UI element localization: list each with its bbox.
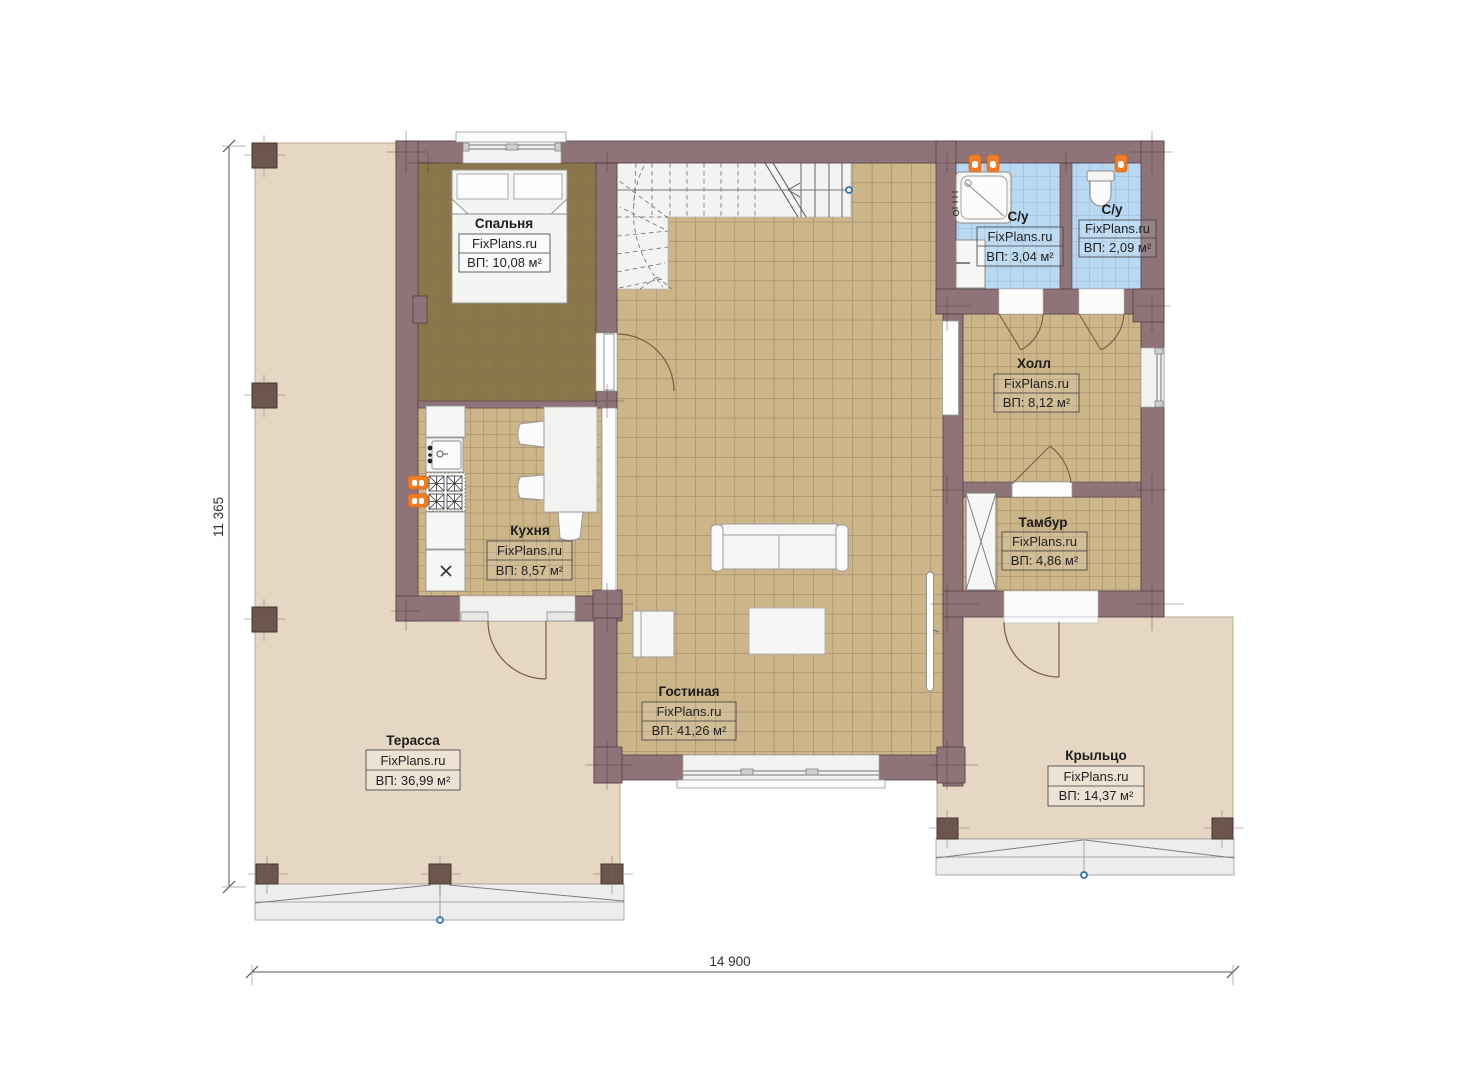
- svg-text:ВП: 8,12 м²: ВП: 8,12 м²: [1003, 395, 1071, 410]
- svg-text:С/у: С/у: [1101, 202, 1123, 217]
- svg-text:С/у: С/у: [1007, 209, 1029, 224]
- svg-text:11 365: 11 365: [211, 497, 226, 537]
- svg-text:Гостиная: Гостиная: [658, 684, 719, 699]
- svg-text:FixPlans.ru: FixPlans.ru: [1085, 221, 1150, 236]
- svg-text:14 900: 14 900: [709, 954, 750, 969]
- svg-text:Холл: Холл: [1017, 356, 1051, 371]
- svg-text:Спальня: Спальня: [475, 216, 533, 231]
- svg-text:FixPlans.ru: FixPlans.ru: [1004, 376, 1069, 391]
- svg-text:FixPlans.ru: FixPlans.ru: [472, 236, 537, 251]
- svg-text:ВП: 8,57 м²: ВП: 8,57 м²: [496, 563, 564, 578]
- svg-text:FixPlans.ru: FixPlans.ru: [1063, 769, 1128, 784]
- svg-text:FixPlans.ru: FixPlans.ru: [380, 753, 445, 768]
- svg-text:ВП: 2,09 м²: ВП: 2,09 м²: [1084, 240, 1152, 255]
- svg-text:Терасса: Терасса: [386, 733, 440, 748]
- svg-text:Тамбур: Тамбур: [1019, 515, 1068, 530]
- svg-text:ВП: 10,08 м²: ВП: 10,08 м²: [467, 255, 542, 270]
- svg-text:ВП: 14,37 м²: ВП: 14,37 м²: [1059, 788, 1134, 803]
- svg-text:ВП: 4,86 м²: ВП: 4,86 м²: [1011, 553, 1079, 568]
- svg-text:Кухня: Кухня: [510, 523, 549, 538]
- svg-text:FixPlans.ru: FixPlans.ru: [987, 229, 1052, 244]
- svg-text:ВП: 36,99 м²: ВП: 36,99 м²: [376, 773, 451, 788]
- svg-text:FixPlans.ru: FixPlans.ru: [1012, 534, 1077, 549]
- svg-text:ВП: 3,04 м²: ВП: 3,04 м²: [986, 249, 1054, 264]
- svg-text:FixPlans.ru: FixPlans.ru: [656, 704, 721, 719]
- svg-text:Крыльцо: Крыльцо: [1065, 748, 1126, 763]
- svg-text:FixPlans.ru: FixPlans.ru: [497, 543, 562, 558]
- svg-text:ВП: 41,26 м²: ВП: 41,26 м²: [652, 723, 727, 738]
